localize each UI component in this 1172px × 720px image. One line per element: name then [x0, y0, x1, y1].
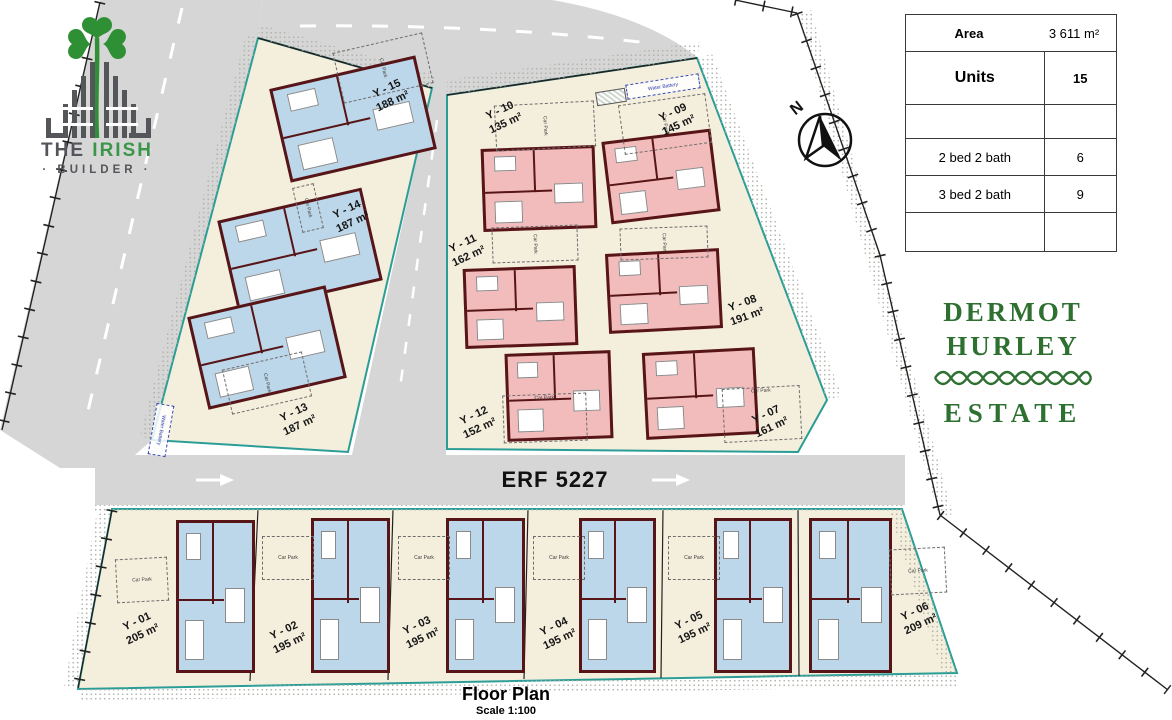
furniture — [297, 137, 338, 170]
north-compass: N — [778, 86, 862, 176]
north-letter: N — [787, 98, 807, 119]
area-label: Area — [906, 26, 1032, 41]
furniture — [818, 619, 838, 660]
2bed-value: 6 — [1045, 150, 1116, 165]
furniture — [554, 182, 584, 203]
furniture — [186, 533, 202, 560]
summary-table: Area 3 611 m² Units 15 2 bed 2 bath 6 3 … — [905, 14, 1117, 252]
wall — [647, 394, 713, 399]
street-name: ERF 5227 — [488, 467, 622, 493]
wall — [610, 292, 677, 298]
carpark-y06: Car Park — [889, 547, 947, 596]
wall — [283, 208, 296, 256]
builder-logo-text: THE IRISH · BUILDER · — [20, 140, 174, 176]
drawing-scale: Scale 1:100 — [406, 705, 606, 717]
area-value: 3 611 m² — [1032, 26, 1116, 41]
furniture — [455, 619, 475, 660]
wall — [657, 254, 661, 295]
furniture — [819, 531, 836, 558]
wall — [314, 598, 359, 600]
furniture — [679, 284, 709, 305]
unit-floorplan-y04 — [579, 518, 656, 673]
compass-needle-fill — [820, 116, 842, 161]
furniture — [618, 260, 641, 276]
wall — [212, 523, 214, 604]
units-label: Units — [906, 52, 1045, 104]
unit-floorplan-y06 — [809, 518, 892, 673]
summary-row-units: Units 15 — [906, 51, 1116, 104]
wall — [717, 598, 762, 600]
wall — [614, 521, 616, 603]
furniture — [321, 531, 337, 558]
wall — [485, 190, 552, 194]
units-value: 15 — [1045, 71, 1116, 86]
3bed-value: 9 — [1045, 187, 1116, 202]
wall — [514, 270, 517, 311]
summary-row-3bed: 3 bed 2 bath 9 — [906, 175, 1116, 212]
wall — [582, 598, 626, 600]
2bed-label: 2 bed 2 bath — [906, 139, 1045, 175]
wall — [610, 177, 674, 187]
furniture — [185, 620, 205, 660]
wall — [693, 353, 697, 398]
unit-floorplan-y02 — [311, 518, 390, 673]
furniture — [619, 302, 648, 325]
estate-line1: DERMOT — [926, 296, 1100, 330]
carpark-y01: Car Park — [115, 557, 169, 604]
furniture — [675, 167, 705, 190]
wall — [449, 598, 494, 600]
furniture — [517, 361, 539, 378]
furniture — [235, 220, 267, 243]
wall — [812, 598, 860, 600]
summary-row-area: Area 3 611 m² — [906, 15, 1116, 51]
estate-line2: HURLEY — [926, 330, 1100, 364]
logo-word-irish: IRISH — [92, 140, 153, 161]
furniture — [320, 619, 340, 660]
furniture — [456, 531, 472, 558]
wall — [467, 308, 533, 312]
carpark-y08: Car Park — [619, 225, 708, 260]
logo-word-the: THE — [41, 140, 85, 161]
furniture — [287, 88, 319, 111]
logo-word-builder: · BUILDER · — [20, 164, 174, 176]
unit-floorplan-y05 — [714, 518, 792, 673]
summary-row-blank2 — [906, 212, 1116, 251]
furniture — [861, 587, 882, 623]
furniture — [360, 587, 380, 623]
furniture — [225, 588, 245, 624]
wall — [347, 521, 349, 603]
furniture — [627, 587, 647, 623]
wall — [847, 521, 849, 603]
celtic-knot-icon — [933, 366, 1093, 390]
carpark-y05: Car Park — [668, 536, 720, 580]
summary-row-2bed: 2 bed 2 bath 6 — [906, 138, 1116, 175]
estate-line3: ESTATE — [926, 397, 1100, 431]
unit-floorplan-y03 — [446, 518, 525, 673]
shamrock-stem — [96, 38, 97, 138]
carpark-y11: Car Park — [491, 225, 578, 264]
furniture — [588, 531, 603, 558]
wall — [749, 521, 751, 603]
furniture — [495, 587, 515, 623]
drawing-title-text: Floor Plan — [406, 684, 606, 705]
carpark-y04: Car Park — [533, 536, 585, 580]
furniture — [656, 406, 685, 430]
builder-logo-mark — [22, 8, 172, 142]
summary-row-blank1 — [906, 104, 1116, 138]
furniture — [476, 276, 499, 291]
furniture — [723, 531, 739, 558]
unit-floorplan-y01 — [176, 520, 255, 673]
furniture — [763, 587, 783, 623]
carpark-y03: Car Park — [398, 536, 450, 580]
furniture — [204, 316, 235, 339]
unit-floorplan-y11 — [463, 265, 579, 349]
drawing-title: Floor Plan Scale 1:100 — [406, 684, 606, 717]
carpark-y02: Car Park — [262, 536, 314, 580]
unit-floorplan-y10 — [481, 145, 598, 232]
wall — [482, 521, 484, 603]
wall — [179, 599, 224, 601]
estate-title: DERMOT HURLEY ESTATE — [926, 296, 1100, 430]
furniture — [494, 200, 523, 223]
furniture — [655, 360, 678, 377]
unit-floorplan-y08 — [605, 248, 723, 334]
wall — [532, 150, 535, 192]
furniture — [476, 318, 504, 340]
3bed-label: 3 bed 2 bath — [906, 176, 1045, 212]
furniture — [619, 190, 648, 215]
wall — [231, 248, 317, 270]
furniture — [535, 301, 564, 321]
wall — [250, 305, 263, 353]
compass-needle-outline — [806, 116, 823, 158]
wall — [283, 117, 370, 139]
carpark-y12: Car Park — [502, 393, 588, 444]
furniture — [494, 156, 517, 172]
